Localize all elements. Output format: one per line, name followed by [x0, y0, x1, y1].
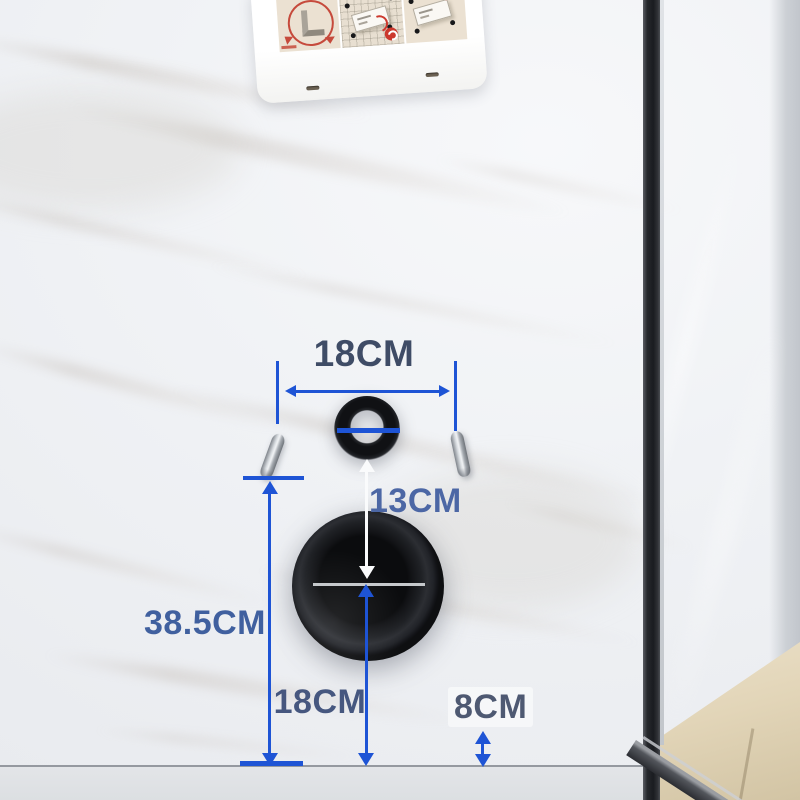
instruction-sticker — [276, 0, 467, 52]
inlet-center-line — [337, 428, 400, 433]
dim-extension-line — [454, 361, 457, 431]
card-slot — [306, 86, 319, 91]
marble-vein — [41, 646, 468, 729]
dim-extension-line — [276, 361, 279, 424]
mounting-bolt-left — [259, 432, 287, 480]
instruction-card — [250, 0, 488, 104]
marble-vein — [90, 725, 369, 762]
dim-arrow-shaft-white — [365, 469, 368, 569]
mounting-plate-on-grid-diagram-icon — [339, 0, 404, 48]
dim-bolt-height-label: 38.5CM — [138, 604, 266, 643]
bathroom-wall-scene: 18CM 13CM 38.5CM 18CM 8CM — [0, 0, 800, 800]
marble-shade-patch — [0, 90, 240, 210]
arrow-down-icon — [359, 566, 375, 579]
card-slot — [426, 72, 439, 77]
dim-side-clearance-label: 8CM — [448, 688, 524, 727]
dim-side-clearance-text: 8CM — [448, 687, 533, 727]
marble-vein — [0, 338, 296, 437]
glass-frame-silver-edge — [660, 0, 664, 745]
arrow-down-icon — [475, 754, 491, 767]
dim-arrow-shaft — [294, 390, 445, 393]
dim-datum-line — [243, 476, 304, 480]
dim-datum-line — [240, 761, 303, 766]
dim-outlet-height-label: 18CM — [268, 683, 372, 722]
dim-arrow-shaft — [365, 596, 368, 754]
arrow-down-icon — [358, 753, 374, 766]
floor-strip — [0, 767, 655, 800]
marble-vein — [0, 521, 277, 610]
dim-bolt-spacing-label: 18CM — [298, 333, 430, 375]
glass-partition-frame-vertical — [643, 0, 660, 800]
mounting-plate-trowel-diagram-icon — [402, 0, 467, 43]
arrow-left-icon — [285, 385, 296, 397]
corner-bracket-seal-diagram-icon — [276, 0, 341, 52]
arrow-right-icon — [439, 385, 450, 397]
dim-inlet-to-outlet-label: 13CM — [369, 482, 479, 521]
